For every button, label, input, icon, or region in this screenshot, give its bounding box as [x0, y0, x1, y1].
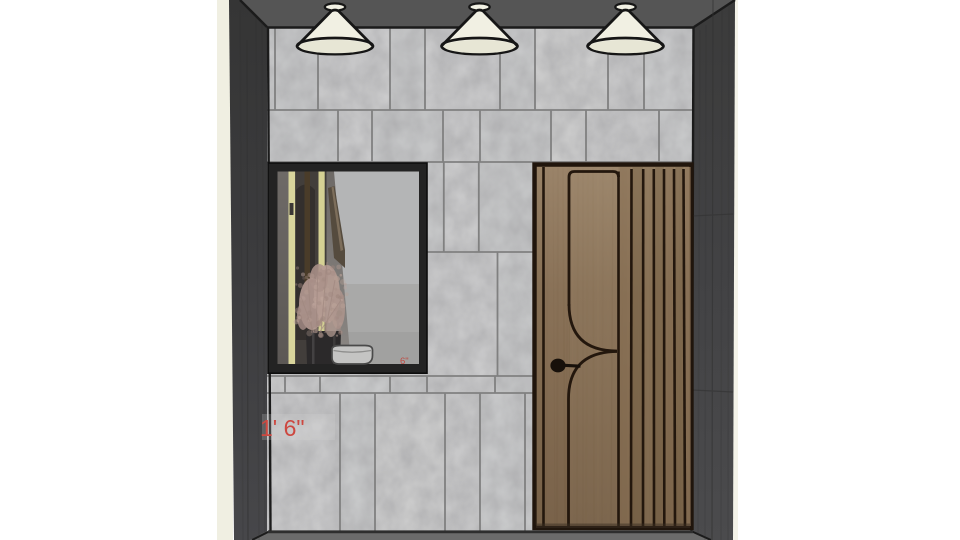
svg-text:1' 6": 1' 6" [260, 415, 305, 441]
svg-text:6": 6" [400, 356, 409, 367]
